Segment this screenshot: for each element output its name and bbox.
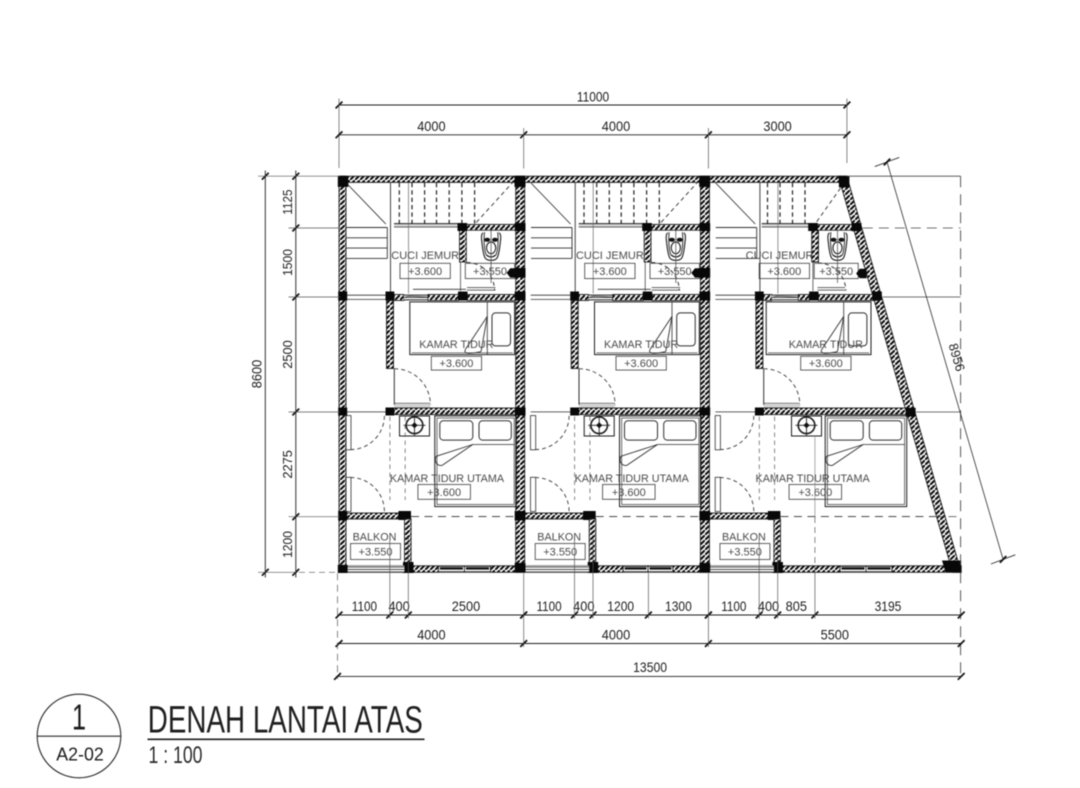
svg-text:CUCI JEMUR: CUCI JEMUR (391, 250, 459, 262)
svg-text:+3.600: +3.600 (612, 487, 646, 499)
svg-text:KAMAR TIDUR UTAMA: KAMAR TIDUR UTAMA (575, 473, 690, 485)
svg-text:DENAH LANTAI ATAS: DENAH LANTAI ATAS (148, 700, 423, 742)
svg-text:3195: 3195 (875, 599, 902, 614)
svg-text:1: 1 (72, 697, 86, 738)
svg-text:+3.550: +3.550 (819, 266, 853, 278)
svg-text:KAMAR TIDUR: KAMAR TIDUR (419, 339, 493, 351)
svg-text:1300: 1300 (665, 599, 692, 614)
svg-text:1100: 1100 (537, 599, 562, 614)
svg-text:1100: 1100 (721, 599, 746, 614)
svg-text:A2-02: A2-02 (56, 745, 104, 765)
svg-text:+3.550: +3.550 (359, 547, 393, 559)
svg-text:4000: 4000 (602, 627, 630, 642)
svg-text:805: 805 (786, 599, 807, 614)
svg-text:+3.600: +3.600 (427, 487, 461, 499)
svg-text:KAMAR TIDUR: KAMAR TIDUR (789, 339, 863, 351)
svg-text:CUCI JEMUR: CUCI JEMUR (576, 250, 644, 262)
svg-text:KAMAR TIDUR: KAMAR TIDUR (604, 339, 678, 351)
svg-text:1500: 1500 (280, 249, 295, 276)
svg-text:+3.600: +3.600 (767, 266, 801, 278)
svg-text:2275: 2275 (280, 450, 295, 478)
svg-text:1125: 1125 (280, 190, 295, 215)
svg-text:+3.600: +3.600 (809, 358, 843, 370)
svg-text:+3.600: +3.600 (624, 358, 658, 370)
svg-text:+3.550: +3.550 (658, 266, 692, 278)
svg-text:KAMAR TIDUR UTAMA: KAMAR TIDUR UTAMA (756, 473, 871, 485)
svg-text:+3.600: +3.600 (798, 487, 832, 499)
svg-text:+3.550: +3.550 (473, 266, 507, 278)
svg-text:3000: 3000 (763, 119, 791, 134)
svg-text:4000: 4000 (417, 119, 445, 134)
svg-text:KAMAR TIDUR UTAMA: KAMAR TIDUR UTAMA (390, 473, 505, 485)
svg-text:1200: 1200 (607, 599, 634, 614)
svg-text:+3.600: +3.600 (439, 358, 473, 370)
svg-text:11000: 11000 (577, 89, 609, 104)
svg-text:CUCI JEMUR: CUCI JEMUR (746, 250, 814, 262)
svg-text:+3.550: +3.550 (543, 547, 577, 559)
svg-text:2500: 2500 (452, 599, 480, 614)
svg-text:13500: 13500 (633, 660, 667, 675)
svg-text:4000: 4000 (417, 627, 445, 642)
svg-text:400: 400 (758, 599, 779, 614)
svg-text:2500: 2500 (280, 340, 295, 368)
svg-text:5500: 5500 (821, 627, 849, 642)
svg-text:400: 400 (388, 599, 409, 614)
svg-text:+3.550: +3.550 (728, 547, 762, 559)
svg-text:+3.600: +3.600 (408, 266, 442, 278)
svg-text:400: 400 (573, 599, 594, 614)
svg-text:1 : 100: 1 : 100 (149, 742, 203, 769)
svg-text:+3.600: +3.600 (593, 266, 627, 278)
svg-text:4000: 4000 (602, 119, 630, 134)
svg-text:8600: 8600 (249, 360, 264, 388)
svg-text:1100: 1100 (352, 599, 377, 614)
svg-text:1200: 1200 (280, 531, 295, 558)
